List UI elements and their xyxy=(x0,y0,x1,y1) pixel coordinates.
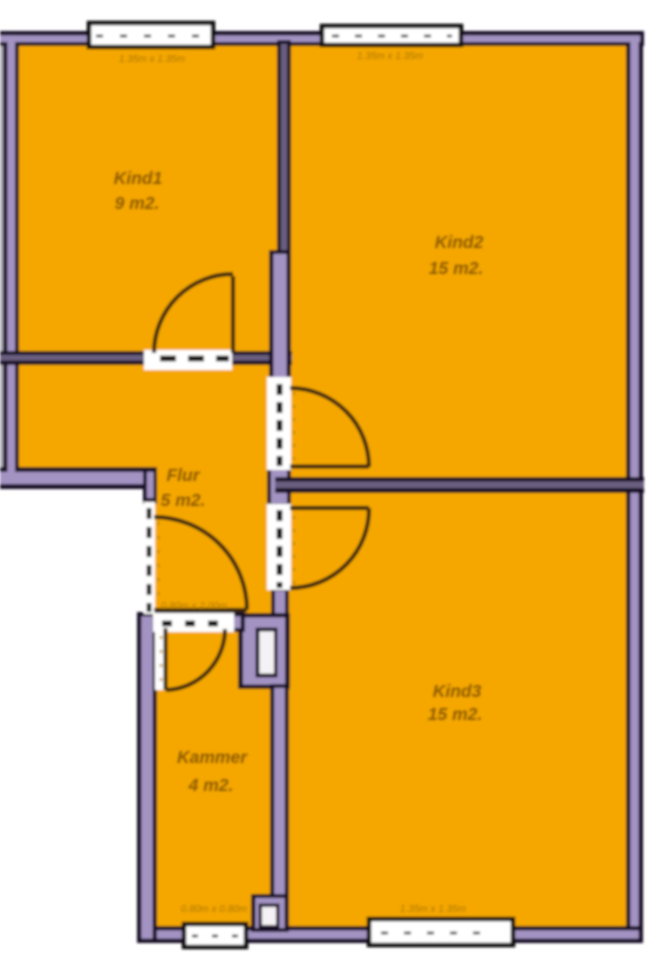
svg-text:0.80m x 2.00m: 0.80m x 2.00m xyxy=(161,601,227,612)
svg-text:1.35m x 1.35m: 1.35m x 1.35m xyxy=(119,54,185,65)
svg-text:Kind1: Kind1 xyxy=(114,168,163,188)
svg-text:Flur: Flur xyxy=(166,465,200,485)
svg-text:Kind2: Kind2 xyxy=(435,232,484,252)
svg-text:Kammer: Kammer xyxy=(177,747,248,767)
svg-text:15 m2.: 15 m2. xyxy=(428,704,482,724)
svg-text:5 m2.: 5 m2. xyxy=(161,490,206,510)
svg-text:15 m2.: 15 m2. xyxy=(429,258,483,278)
svg-text:1.35m x 1.35m: 1.35m x 1.35m xyxy=(357,51,423,62)
svg-text:Kind3: Kind3 xyxy=(433,681,482,701)
svg-text:0.80m x 0.80m: 0.80m x 0.80m xyxy=(181,904,247,915)
svg-text:1.35m x 1.35m: 1.35m x 1.35m xyxy=(400,904,466,915)
svg-text:9 m2.: 9 m2. xyxy=(115,193,160,213)
svg-text:4 m2.: 4 m2. xyxy=(188,775,234,795)
